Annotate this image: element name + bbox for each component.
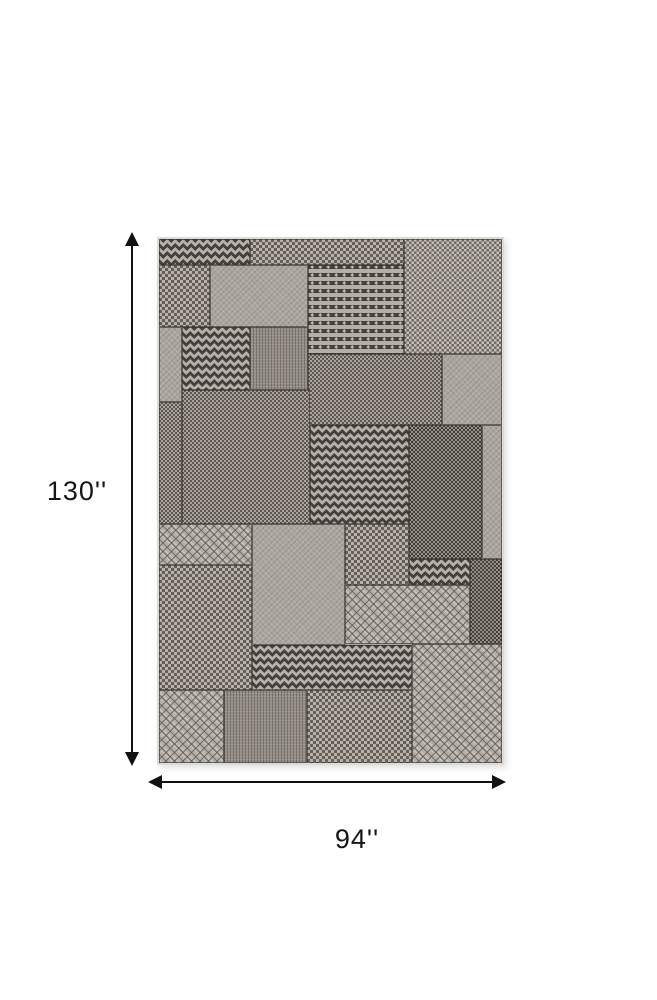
rug-patch-diamond — [412, 644, 502, 763]
rug-patch-basket-light — [404, 239, 502, 354]
product-dimension-image: 130'' 94'' — [0, 0, 657, 1000]
width-dimension-arrow — [148, 774, 506, 790]
rug-patch-chevron-h — [159, 239, 250, 265]
height-label: 130'' — [27, 476, 127, 507]
horizontal-arrow-shaft — [156, 781, 498, 783]
rug-patch-chevron-h — [409, 559, 470, 585]
rug-patch-basket-coarse — [159, 565, 252, 690]
rug-patch-basket-coarse — [307, 690, 412, 763]
rug-patch-diamond — [159, 690, 224, 763]
rug-patch-basket-dark — [470, 559, 502, 644]
rug-patch-basket-mid — [159, 402, 182, 524]
rug-patch-basket-mid — [182, 390, 310, 524]
rug-patch-diamond — [159, 524, 252, 565]
rug-patch-diamond — [345, 585, 470, 644]
rug-patch-plain-dark — [250, 327, 308, 390]
rug-patch-plain — [482, 425, 502, 559]
rug-patch-chevron-h — [252, 645, 412, 690]
rug-patch-basket-coarse — [345, 524, 409, 585]
rug-patch-basket-dark — [409, 425, 482, 559]
rug-patch-plain-dark — [224, 690, 307, 763]
vertical-arrow-shaft — [131, 240, 133, 758]
rug-patch-plain — [159, 327, 182, 402]
rug-patch-plain — [210, 265, 308, 327]
rug-patch-chevron-v — [308, 265, 404, 354]
rug-image — [157, 237, 504, 765]
rug-patch-plain — [252, 524, 345, 645]
rug-patch-plain — [442, 354, 502, 425]
width-label: 94'' — [297, 824, 417, 855]
arrow-down-icon — [125, 752, 139, 766]
rug-patch-chevron-h — [182, 327, 250, 390]
rug-patch-basket-coarse — [250, 239, 404, 265]
rug-patch-basket-mid — [308, 354, 442, 425]
rug-patch-basket-coarse — [159, 265, 210, 327]
arrow-right-icon — [492, 775, 506, 789]
rug-patch-chevron-h — [310, 425, 409, 524]
